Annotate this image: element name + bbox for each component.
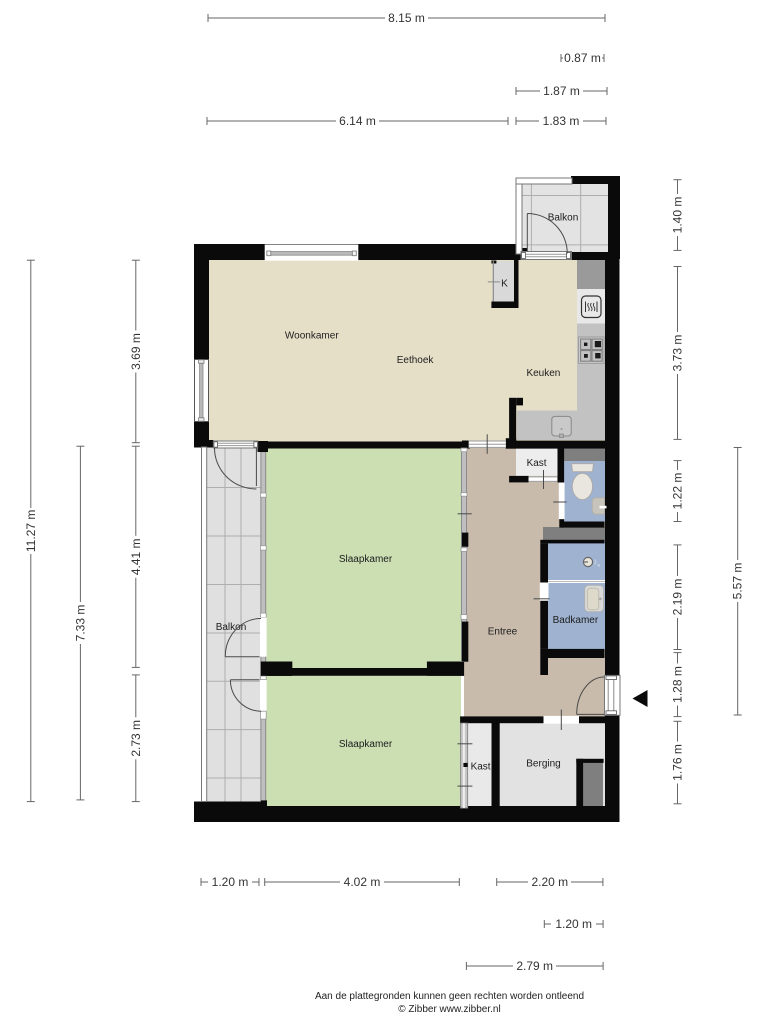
svg-text:Eethoek: Eethoek bbox=[397, 355, 435, 366]
svg-text:2.79 m: 2.79 m bbox=[516, 959, 553, 973]
svg-text:K: K bbox=[501, 279, 508, 290]
svg-text:© Zibber www.zibber.nl: © Zibber www.zibber.nl bbox=[398, 1004, 500, 1015]
svg-text:Slaapkamer: Slaapkamer bbox=[339, 739, 393, 750]
svg-text:Badkamer: Badkamer bbox=[553, 615, 599, 626]
svg-text:Woonkamer: Woonkamer bbox=[285, 331, 339, 342]
svg-text:2.73 m: 2.73 m bbox=[129, 720, 143, 757]
svg-text:1.40 m: 1.40 m bbox=[671, 197, 685, 234]
svg-text:1.76 m: 1.76 m bbox=[671, 744, 685, 781]
svg-text:3.69 m: 3.69 m bbox=[129, 333, 143, 370]
svg-text:1.83 m: 1.83 m bbox=[543, 114, 580, 128]
svg-text:4.41 m: 4.41 m bbox=[129, 538, 143, 575]
svg-text:5.57 m: 5.57 m bbox=[731, 563, 745, 600]
svg-text:8.15 m: 8.15 m bbox=[388, 11, 425, 25]
svg-text:1.20 m: 1.20 m bbox=[212, 875, 249, 889]
svg-text:1.87 m: 1.87 m bbox=[543, 84, 580, 98]
svg-text:Balkon: Balkon bbox=[216, 622, 247, 633]
svg-text:Aan de plattegronden kunnen ge: Aan de plattegronden kunnen geen rechten… bbox=[315, 991, 584, 1002]
svg-text:Berging: Berging bbox=[526, 759, 560, 770]
svg-text:2.19 m: 2.19 m bbox=[671, 579, 685, 616]
svg-text:Entree: Entree bbox=[488, 627, 518, 638]
svg-text:1.28 m: 1.28 m bbox=[671, 666, 685, 703]
svg-text:0.87 m: 0.87 m bbox=[564, 51, 601, 65]
svg-text:1.22 m: 1.22 m bbox=[671, 473, 685, 510]
svg-text:1.20 m: 1.20 m bbox=[555, 917, 592, 931]
svg-text:11.27 m: 11.27 m bbox=[24, 510, 38, 552]
svg-text:Kast: Kast bbox=[471, 762, 491, 773]
svg-text:6.14 m: 6.14 m bbox=[339, 114, 376, 128]
svg-text:3.73 m: 3.73 m bbox=[671, 335, 685, 372]
svg-text:Slaapkamer: Slaapkamer bbox=[339, 554, 393, 565]
svg-text:4.02 m: 4.02 m bbox=[344, 875, 381, 889]
svg-text:7.33 m: 7.33 m bbox=[73, 605, 87, 642]
svg-text:Kast: Kast bbox=[527, 458, 547, 469]
svg-text:2.20 m: 2.20 m bbox=[531, 875, 568, 889]
svg-text:Keuken: Keuken bbox=[526, 368, 560, 379]
